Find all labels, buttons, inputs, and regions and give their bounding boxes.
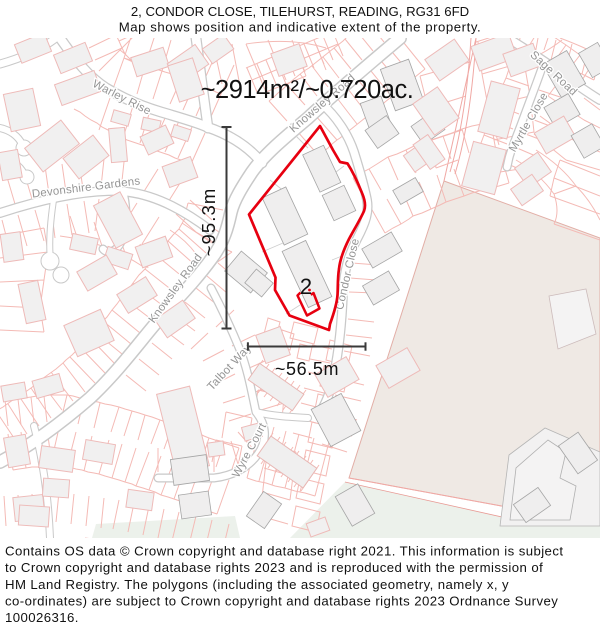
svg-text:to Crown copyright and databas: to Crown copyright and database rights 2… — [5, 560, 543, 575]
svg-text:co-ordinates) are subject to C: co-ordinates) are subject to Crown copyr… — [5, 594, 558, 609]
svg-text:~95.3m: ~95.3m — [198, 188, 219, 257]
svg-text:HM Land Registry. The polygons: HM Land Registry. The polygons (includin… — [5, 577, 509, 592]
svg-text:2: 2 — [300, 274, 312, 299]
svg-text:100026316.: 100026316. — [5, 610, 79, 625]
svg-text:~2914m²/~0.720ac.: ~2914m²/~0.720ac. — [201, 76, 414, 104]
svg-text:~56.5m: ~56.5m — [275, 359, 339, 379]
svg-text:Map shows position and indicat: Map shows position and indicative extent… — [119, 20, 481, 35]
svg-text:Contains OS data © Crown copyr: Contains OS data © Crown copyright and d… — [5, 544, 563, 559]
svg-text:2, CONDOR CLOSE, TILEHURST, RE: 2, CONDOR CLOSE, TILEHURST, READING, RG3… — [131, 4, 469, 19]
